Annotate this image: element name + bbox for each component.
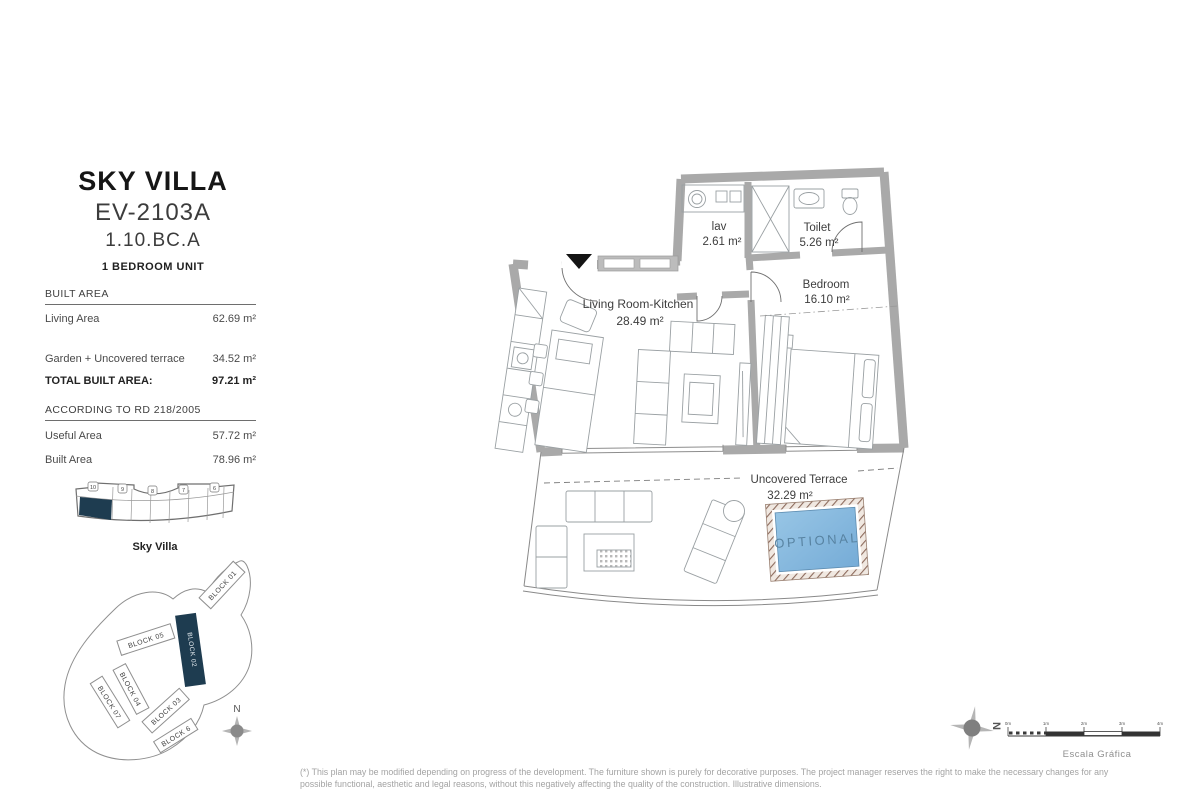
sofa-back bbox=[669, 321, 734, 354]
unit-number: 8 bbox=[151, 489, 154, 495]
wardrobe bbox=[756, 315, 789, 444]
disclaimer: (*) This plan may be modified depending … bbox=[300, 767, 1160, 790]
footer-graphics: N 0m 1m 2m 3m 4m Escala Gráfica bbox=[940, 698, 1190, 762]
room-name: Toilet bbox=[804, 222, 832, 234]
bedroom-section-line bbox=[760, 306, 898, 316]
row-label: Useful Area bbox=[45, 430, 102, 442]
wall-lav-bottom bbox=[722, 294, 749, 295]
side-table bbox=[724, 501, 745, 522]
terrace-furniture bbox=[536, 491, 745, 588]
wall-living-bedroom bbox=[749, 256, 750, 270]
scale-tick-label: 4m bbox=[1157, 721, 1164, 726]
strip-caption: Sky Villa bbox=[65, 541, 245, 553]
wall-entry-stub bbox=[513, 264, 528, 265]
unit-number: 10 bbox=[90, 485, 96, 491]
unit-type: 1 BEDROOM UNIT bbox=[38, 261, 268, 273]
stool bbox=[529, 371, 544, 386]
row-value: 34.52 m² bbox=[213, 353, 256, 365]
wall-right bbox=[884, 172, 904, 448]
room-name: lav bbox=[712, 221, 727, 233]
entry-closet bbox=[598, 256, 678, 271]
optional-pool: OPTIONAL bbox=[765, 498, 868, 582]
row-value: 57.72 m² bbox=[213, 430, 256, 442]
floor-plan: OPTIONAL lav 2.61 m² Toilet 5.26 m² Bedr… bbox=[480, 150, 940, 650]
room-area: 2.61 m² bbox=[703, 236, 742, 248]
page-title: SKY VILLA bbox=[38, 166, 268, 197]
scale-caption: Escala Gráfica bbox=[1063, 749, 1132, 760]
plan-sheet: SKY VILLA EV-2103A 1.10.BC.A 1 BEDROOM U… bbox=[0, 0, 1200, 800]
row-value: 97.21 m² bbox=[212, 375, 256, 387]
graphic-scale: 0m 1m 2m 3m 4m Escala Gráfica bbox=[1005, 721, 1164, 760]
row-value: 78.96 m² bbox=[213, 454, 256, 466]
scale-tick-label: 2m bbox=[1081, 721, 1088, 726]
stool bbox=[525, 399, 540, 414]
compass-north-label: N bbox=[233, 704, 240, 715]
toilet-sink bbox=[794, 189, 824, 208]
stool bbox=[533, 344, 548, 359]
wall-lav-left bbox=[677, 179, 681, 261]
unit-reference: 1.10.BC.A bbox=[38, 230, 268, 252]
lav-sink-inner bbox=[692, 194, 702, 204]
table-row: Useful Area 57.72 m² bbox=[45, 430, 256, 442]
scale-tick-label: 0m bbox=[1005, 721, 1012, 726]
wall-living-bedroom bbox=[751, 300, 757, 452]
scale-tick-label: 1m bbox=[1043, 721, 1050, 726]
room-name: Bedroom bbox=[803, 279, 850, 291]
pillow bbox=[859, 403, 873, 442]
row-label: TOTAL BUILT AREA: bbox=[45, 375, 153, 387]
built-area-heading: BUILT AREA bbox=[45, 288, 256, 305]
row-label: Garden + Uncovered terrace bbox=[45, 353, 185, 365]
wall-toilet-bottom bbox=[748, 255, 800, 258]
unit-code: EV-2103A bbox=[38, 199, 268, 227]
disclaimer-line: (*) This plan may be modified depending … bbox=[300, 767, 1160, 779]
shower-cross bbox=[752, 186, 789, 252]
scale-segment-solid bbox=[1122, 732, 1160, 736]
row-value: 62.69 m² bbox=[213, 313, 256, 325]
sofa-group bbox=[634, 320, 753, 450]
scale-segment-open bbox=[1084, 732, 1122, 736]
room-area: 16.10 m² bbox=[804, 294, 850, 306]
table-row: Garden + Uncovered terrace 34.52 m² bbox=[45, 353, 256, 365]
wall-top bbox=[681, 172, 884, 179]
washer bbox=[730, 191, 741, 202]
wall-bottom-chunk bbox=[541, 451, 562, 452]
pillow bbox=[862, 359, 876, 398]
lav-counter bbox=[682, 185, 744, 212]
row-label: Living Area bbox=[45, 313, 99, 325]
unit-number: 9 bbox=[121, 487, 124, 493]
oven bbox=[511, 347, 534, 370]
wall-toilet-bottom bbox=[832, 250, 888, 253]
unit-number: 6 bbox=[213, 486, 216, 492]
sofa-seat bbox=[634, 350, 671, 446]
scale-tick-label: 3m bbox=[1119, 721, 1126, 726]
table-row: Living Area 62.69 m² bbox=[45, 313, 256, 325]
building-strip-diagram: 10 9 8 7 6 bbox=[65, 474, 245, 534]
table-row-total: TOTAL BUILT AREA: 97.21 m² bbox=[45, 375, 256, 387]
unit-number: 7 bbox=[182, 488, 185, 494]
table-rug bbox=[597, 550, 631, 567]
scale-labels: 0m 1m 2m 3m 4m bbox=[1005, 721, 1164, 726]
bedroom-furniture bbox=[756, 315, 881, 451]
unit-header: SKY VILLA EV-2103A 1.10.BC.A 1 BEDROOM U… bbox=[38, 166, 268, 273]
compass-north-label: N bbox=[990, 722, 1002, 730]
north-compass-icon bbox=[947, 703, 997, 753]
scale-segment-solid bbox=[1046, 732, 1084, 736]
site-plan: BLOCK 01 BLOCK 02 BLOCK 05 BLOCK 04 BLOC… bbox=[55, 556, 270, 768]
rd218-heading: ACCORDING TO RD 218/2005 bbox=[45, 404, 256, 421]
lav-door-arc bbox=[697, 296, 722, 321]
room-name: Living Room-Kitchen bbox=[583, 297, 694, 311]
built-area-table: BUILT AREA Living Area 62.69 m² Garden +… bbox=[45, 288, 256, 387]
room-area: 32.29 m² bbox=[767, 490, 813, 502]
outdoor-sofa bbox=[566, 491, 652, 522]
bedroom-door-arc bbox=[751, 272, 781, 302]
lav-sink bbox=[689, 191, 706, 208]
coffee-table bbox=[682, 374, 720, 424]
rd218-table: ACCORDING TO RD 218/2005 Useful Area 57.… bbox=[45, 404, 256, 466]
disclaimer-line: possible functional, aesthetic and legal… bbox=[300, 779, 1160, 791]
wc-tank bbox=[842, 189, 858, 198]
row-label: Built Area bbox=[45, 454, 92, 466]
room-area: 5.26 m² bbox=[800, 237, 839, 249]
wc-bowl bbox=[843, 198, 857, 215]
site-compass-icon: N bbox=[222, 704, 252, 746]
room-area: 28.49 m² bbox=[616, 314, 663, 328]
room-name: Uncovered Terrace bbox=[751, 474, 848, 486]
toilet-sink-basin bbox=[799, 193, 819, 205]
table-row: Built Area 78.96 m² bbox=[45, 454, 256, 466]
washer bbox=[716, 191, 727, 202]
